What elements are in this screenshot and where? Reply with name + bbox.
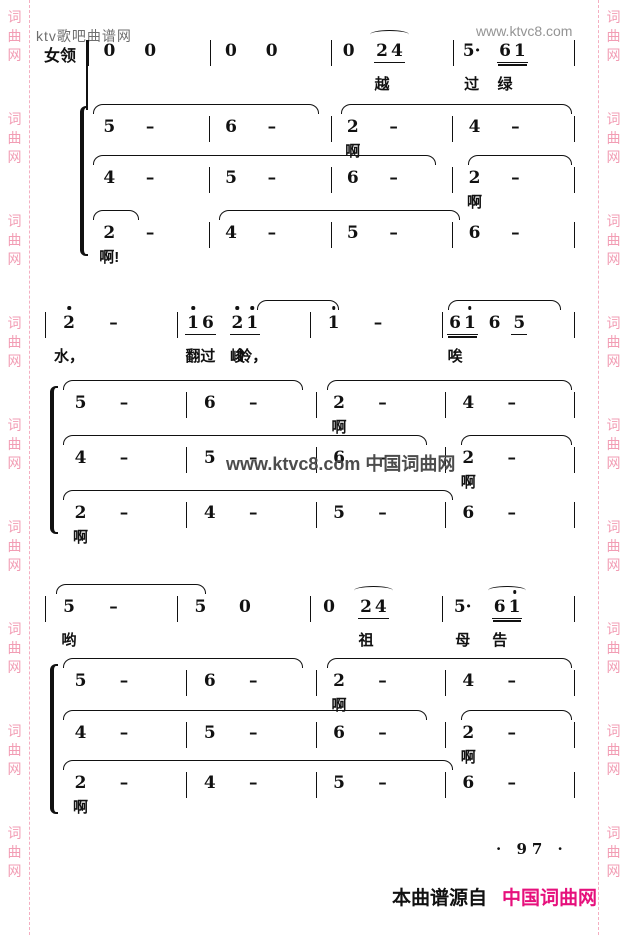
note-group: 6 [460, 502, 476, 524]
note-digit: 5 [75, 671, 87, 691]
measure: 6– [452, 222, 575, 248]
note: 6 [204, 670, 216, 692]
side-watermark-group: 词曲网 [8, 824, 22, 881]
slur-arc [63, 710, 427, 720]
note-group: 6绿1 [497, 40, 528, 63]
note-group: 4 [467, 116, 483, 138]
note-digit: 6 [204, 671, 216, 691]
slur-arc [63, 658, 303, 668]
lyric: 啊 [73, 796, 88, 817]
measure: 5哟– [45, 596, 177, 622]
note-digit: 0 [343, 41, 355, 61]
note-digit: 5 [63, 597, 75, 617]
note-digit: 0 [323, 597, 335, 617]
dash-note: – [378, 502, 387, 524]
note-group: – [247, 670, 260, 692]
lead-vocal-label: 女领 [44, 42, 76, 66]
note-digit: – [268, 223, 277, 243]
note-group: – [247, 772, 260, 794]
note-group: 4 [101, 167, 117, 189]
note-digit: – [389, 168, 398, 188]
measure: 2啊– [58, 772, 186, 798]
note-group: – [505, 670, 518, 692]
note: 1 [464, 312, 476, 334]
watermark-top-right: www.ktvc8.com [476, 23, 572, 39]
note-digit: 2 [333, 393, 345, 413]
note-group: 0 [223, 40, 239, 62]
note-group: 4 [223, 222, 239, 244]
note: 5 [204, 447, 216, 469]
measure: 6– [209, 116, 331, 142]
measure: 6– [316, 722, 445, 748]
note: 4 [204, 502, 216, 524]
octave-dot [513, 590, 517, 594]
side-watermark-char: 曲 [8, 435, 22, 454]
note: 6过 [202, 312, 214, 334]
note-digit: 2 [376, 41, 388, 61]
note-digit: 6 [449, 313, 461, 333]
stave-row: 2啊!–4–5–6– [88, 222, 575, 248]
note: 0 [144, 40, 156, 62]
note: 4 [462, 392, 474, 414]
note-digit: – [109, 597, 118, 617]
note-digit: 6 [202, 313, 214, 333]
note-group: 2啊 [345, 116, 361, 138]
note-group: 5 [73, 392, 89, 414]
dash-note: – [378, 670, 387, 692]
side-watermark-char: 网 [607, 454, 621, 473]
note-group: – [376, 772, 389, 794]
note-digit: – [507, 671, 516, 691]
note-digit: 4 [75, 448, 87, 468]
dash-note: – [507, 447, 516, 469]
side-watermark-char: 网 [8, 454, 22, 473]
note-digit: – [374, 313, 383, 333]
note-group: – [509, 167, 522, 189]
note-group: 0 [142, 40, 158, 62]
note-digit: 2 [75, 773, 87, 793]
note: 5哟 [63, 596, 75, 618]
measure: 1翻6过2峻1岭， [177, 312, 309, 338]
note-digit: – [146, 223, 155, 243]
note-group: 2啊 [331, 392, 347, 414]
note-group: 2峻1岭， [230, 312, 261, 335]
note-group: 5 [193, 596, 209, 618]
note-group: 4 [73, 722, 89, 744]
dash-note: – [249, 722, 258, 744]
note-group: – [118, 447, 131, 469]
side-watermark-char: 词 [8, 314, 22, 333]
measure: 5– [58, 670, 186, 696]
dash-note: – [511, 116, 520, 138]
stave-row: 4–5–6–2啊– [58, 722, 575, 748]
note-group: 5·母 [452, 596, 474, 618]
side-watermark-group: 词曲网 [607, 110, 621, 167]
note: 6 [204, 392, 216, 414]
side-watermark-char: 网 [8, 250, 22, 269]
side-watermark-char: 网 [8, 352, 22, 371]
dash-note: – [268, 116, 277, 138]
note-digit: – [507, 723, 516, 743]
note-digit: 4 [391, 41, 403, 61]
note: 6告 [494, 596, 506, 618]
note: 2啊 [462, 447, 474, 469]
dash-note: – [249, 670, 258, 692]
footer-site-name: 中国词曲网 [502, 883, 597, 910]
note: 0 [239, 596, 251, 618]
note: 2啊 [75, 502, 87, 524]
measure: 5– [209, 167, 331, 193]
side-watermark-char: 网 [8, 760, 22, 779]
note: 5·过 [463, 40, 481, 62]
side-watermark-char: 词 [8, 518, 22, 537]
note: 2啊 [75, 772, 87, 794]
measure: 6– [445, 502, 575, 528]
measure: 1– [310, 312, 442, 338]
note-digit: – [249, 773, 258, 793]
measure: 4– [186, 502, 315, 528]
slur-arc [461, 710, 572, 720]
dash-note: – [120, 392, 129, 414]
slur-arc [219, 210, 460, 220]
measure: 2啊!– [88, 222, 209, 248]
dash-note: – [249, 392, 258, 414]
note-group: – [118, 670, 131, 692]
note: 5 [75, 670, 87, 692]
measure: 2啊– [316, 670, 445, 696]
note-digit: – [146, 117, 155, 137]
side-watermark-char: 网 [607, 760, 621, 779]
measure: 02祖4 [310, 596, 442, 622]
measure: 4– [88, 167, 209, 193]
measure: 5– [186, 722, 315, 748]
note-digit: – [120, 671, 129, 691]
measure: 00 [210, 40, 332, 66]
side-watermark-char: 曲 [8, 129, 22, 148]
note-digit: 5· [463, 41, 481, 61]
note: 4 [204, 772, 216, 794]
page-number: · 97 · [496, 840, 568, 858]
dash-note: – [109, 596, 118, 618]
measure: 2水，– [45, 312, 177, 338]
side-watermark-char: 曲 [8, 843, 22, 862]
note-group: 6 [460, 772, 476, 794]
lyric: 啊 [461, 746, 476, 767]
slur-arc [93, 104, 319, 114]
note-group: – [266, 167, 279, 189]
note-group: 5 [345, 222, 361, 244]
dash-note: – [109, 312, 118, 334]
note-digit: 2 [462, 448, 474, 468]
side-watermark-char: 词 [607, 212, 621, 231]
note-digit: 4 [225, 223, 237, 243]
side-watermark-char: 网 [607, 250, 621, 269]
note-group: 2啊 [467, 167, 483, 189]
note-group: – [144, 222, 157, 244]
right-ornament-rail: 词曲网词曲网词曲网词曲网词曲网词曲网词曲网词曲网词曲网 [598, 0, 628, 935]
note-digit: 4 [75, 723, 87, 743]
note-digit: – [507, 393, 516, 413]
note-digit: – [378, 503, 387, 523]
measure: 4– [445, 670, 575, 696]
note-digit: 2 [232, 313, 244, 333]
slur-arc [56, 584, 206, 594]
measure: 00 [88, 40, 210, 66]
dash-note: – [249, 502, 258, 524]
note-group: 0 [237, 596, 253, 618]
note-group: – [118, 502, 131, 524]
note-group: 4 [73, 447, 89, 469]
lyric: 哟 [62, 629, 77, 650]
side-watermark-group: 词曲网 [8, 620, 22, 677]
note: 0 [266, 40, 278, 62]
note: 5 [333, 502, 345, 524]
side-watermark-char: 网 [607, 556, 621, 575]
note: 5 [347, 222, 359, 244]
side-watermark-char: 词 [8, 416, 22, 435]
dash-note: – [120, 670, 129, 692]
stave-row: 5–6–2啊–4– [88, 116, 575, 142]
note-digit: – [389, 223, 398, 243]
note: 4 [391, 40, 403, 62]
measure: 5– [316, 772, 445, 798]
note-digit: – [378, 671, 387, 691]
dash-note: – [268, 167, 277, 189]
measure: 5– [331, 222, 453, 248]
note-digit: 6 [499, 41, 511, 61]
side-watermark-char: 词 [607, 8, 621, 27]
note-group: – [144, 167, 157, 189]
stave-row: 2啊–4–5–6– [58, 772, 575, 798]
side-watermark-char: 词 [607, 824, 621, 843]
note-group: 5 [223, 167, 239, 189]
note: 5 [75, 392, 87, 414]
note: 5 [225, 167, 237, 189]
note-group: – [505, 502, 518, 524]
dash-note: – [389, 116, 398, 138]
side-watermark-group: 词曲网 [607, 416, 621, 473]
side-watermark-char: 曲 [607, 129, 621, 148]
note-digit: 5 [333, 773, 345, 793]
note-digit: – [511, 117, 520, 137]
dash-note: – [120, 772, 129, 794]
measure: 2啊– [445, 447, 575, 473]
dash-note: – [146, 116, 155, 138]
note: 1 [328, 312, 340, 334]
lyric: 唉 [448, 345, 463, 366]
note: 5 [204, 722, 216, 744]
side-watermark-group: 词曲网 [8, 416, 22, 473]
measure: 2啊– [452, 167, 575, 193]
note-group: 2啊 [460, 447, 476, 469]
side-watermark-char: 词 [8, 8, 22, 27]
note: 1翻 [187, 312, 199, 334]
note-group: – [107, 312, 120, 334]
lyric: 啊 [332, 416, 347, 437]
note-digit: 2 [75, 503, 87, 523]
note: 6绿 [499, 40, 511, 62]
side-watermark-char: 网 [607, 862, 621, 881]
note-digit: – [507, 448, 516, 468]
dash-note: – [378, 722, 387, 744]
side-watermark-char: 词 [607, 518, 621, 537]
dash-note: – [146, 167, 155, 189]
side-watermark-group: 词曲网 [607, 518, 621, 575]
note: 4 [462, 670, 474, 692]
side-watermark-char: 曲 [607, 231, 621, 250]
note-digit: 5 [103, 117, 115, 137]
note-group: 4 [460, 392, 476, 414]
note-group: 5哟 [61, 596, 77, 618]
side-watermark-group: 词曲网 [607, 824, 621, 881]
watermark-center: www.ktvc8.com 中国词曲网 [226, 450, 455, 476]
note-digit: – [389, 117, 398, 137]
lyric: 告 [492, 629, 507, 650]
note-group: – [376, 502, 389, 524]
note-digit: 4 [375, 597, 387, 617]
note-digit: 1 [509, 597, 521, 617]
measure: 5– [58, 392, 186, 418]
side-watermark-char: 曲 [8, 537, 22, 556]
note: 2啊! [103, 222, 115, 244]
measure: 6– [186, 670, 315, 696]
side-watermark-char: 曲 [607, 639, 621, 658]
slur-arc [448, 300, 561, 310]
dash-note: – [389, 222, 398, 244]
note-digit: 5 [347, 223, 359, 243]
side-watermark-char: 词 [607, 722, 621, 741]
measure: 4– [58, 447, 186, 473]
note: 6 [462, 772, 474, 794]
note-group: – [118, 772, 131, 794]
note-digit: 5 [195, 597, 207, 617]
measure: 2啊– [445, 722, 575, 748]
note-group: 6 [202, 670, 218, 692]
note-group: 4 [202, 502, 218, 524]
note-group: 0 [101, 40, 117, 62]
note-digit: – [507, 773, 516, 793]
measure: 2啊– [331, 116, 453, 142]
note-group: 2祖4 [358, 596, 389, 619]
note-digit: – [120, 723, 129, 743]
dash-note: – [507, 722, 516, 744]
note-group: 6 [202, 392, 218, 414]
stave-row: 4–5–6–2啊– [88, 167, 575, 193]
note-group: 5 [331, 772, 347, 794]
measure: 4– [209, 222, 331, 248]
slur-arc [63, 435, 427, 445]
note: 4 [103, 167, 115, 189]
dash-note: – [507, 670, 516, 692]
note: 6唉 [449, 312, 461, 334]
dash-note: – [507, 502, 516, 524]
lyric: 啊 [461, 471, 476, 492]
note: 6 [225, 116, 237, 138]
note-group: – [372, 312, 385, 334]
note: 4 [375, 596, 387, 618]
note: 2峻 [232, 312, 244, 334]
note-digit: – [249, 503, 258, 523]
note-group: 1 [326, 312, 342, 334]
note: 6 [347, 167, 359, 189]
sheet-music-page: 词曲网词曲网词曲网词曲网词曲网词曲网词曲网词曲网词曲网 词曲网词曲网词曲网词曲网… [0, 0, 628, 935]
note-digit: 6 [462, 773, 474, 793]
system-brace [80, 106, 88, 256]
note-group: – [505, 392, 518, 414]
note-digit: 4 [204, 503, 216, 523]
stave-row: 5–6–2啊–4– [58, 670, 575, 696]
note-digit: – [378, 393, 387, 413]
note-group: 0 [341, 40, 357, 62]
side-watermark-char: 词 [607, 110, 621, 129]
note-digit: 5 [75, 393, 87, 413]
note: 6 [333, 722, 345, 744]
note-digit: 4 [103, 168, 115, 188]
note-group: – [266, 222, 279, 244]
note-digit: 5 [513, 313, 525, 333]
note-digit: – [109, 313, 118, 333]
note-digit: 2 [63, 313, 75, 333]
note: 5 [103, 116, 115, 138]
note: 0 [323, 596, 335, 618]
side-watermark-char: 曲 [607, 333, 621, 352]
note: 4 [75, 722, 87, 744]
side-watermark-char: 曲 [607, 843, 621, 862]
note-group: 6 [331, 722, 347, 744]
note-digit: 6 [333, 723, 345, 743]
octave-dot [251, 306, 255, 310]
dash-note: – [120, 502, 129, 524]
note: 4 [469, 116, 481, 138]
octave-dot [236, 306, 240, 310]
lyric: 越 [375, 73, 390, 94]
note-group: – [376, 670, 389, 692]
note-group: – [107, 596, 120, 618]
note-group: 6 [223, 116, 239, 138]
note-digit: – [507, 503, 516, 523]
note-digit: 6 [204, 393, 216, 413]
note: 2啊 [333, 670, 345, 692]
note: 6 [489, 312, 501, 334]
measure: 5– [316, 502, 445, 528]
stave-row: 5–6–2啊–4– [58, 392, 575, 418]
note: 5·母 [454, 596, 472, 618]
note-group: 6告1 [492, 596, 523, 619]
note-group: 5 [202, 447, 218, 469]
note-digit: 1 [514, 41, 526, 61]
note-digit: – [511, 223, 520, 243]
note-digit: 5 [225, 168, 237, 188]
slur-arc [93, 155, 436, 165]
side-watermark-char: 词 [8, 212, 22, 231]
side-watermark-group: 词曲网 [8, 110, 22, 167]
note-digit: 6 [462, 503, 474, 523]
note-group: 5 [331, 502, 347, 524]
note-group: 1翻6过 [185, 312, 216, 335]
note-digit: 0 [144, 41, 156, 61]
side-watermark-char: 曲 [8, 639, 22, 658]
side-watermark-char: 网 [607, 658, 621, 677]
slur-arc [257, 300, 339, 310]
note-group: – [118, 722, 131, 744]
note-digit: 5 [333, 503, 345, 523]
note: 0 [343, 40, 355, 62]
note-digit: 5 [204, 448, 216, 468]
note-digit: 4 [469, 117, 481, 137]
note-digit: – [511, 168, 520, 188]
measure: 5·母6告1 [442, 596, 575, 622]
note-digit: 2 [469, 168, 481, 188]
